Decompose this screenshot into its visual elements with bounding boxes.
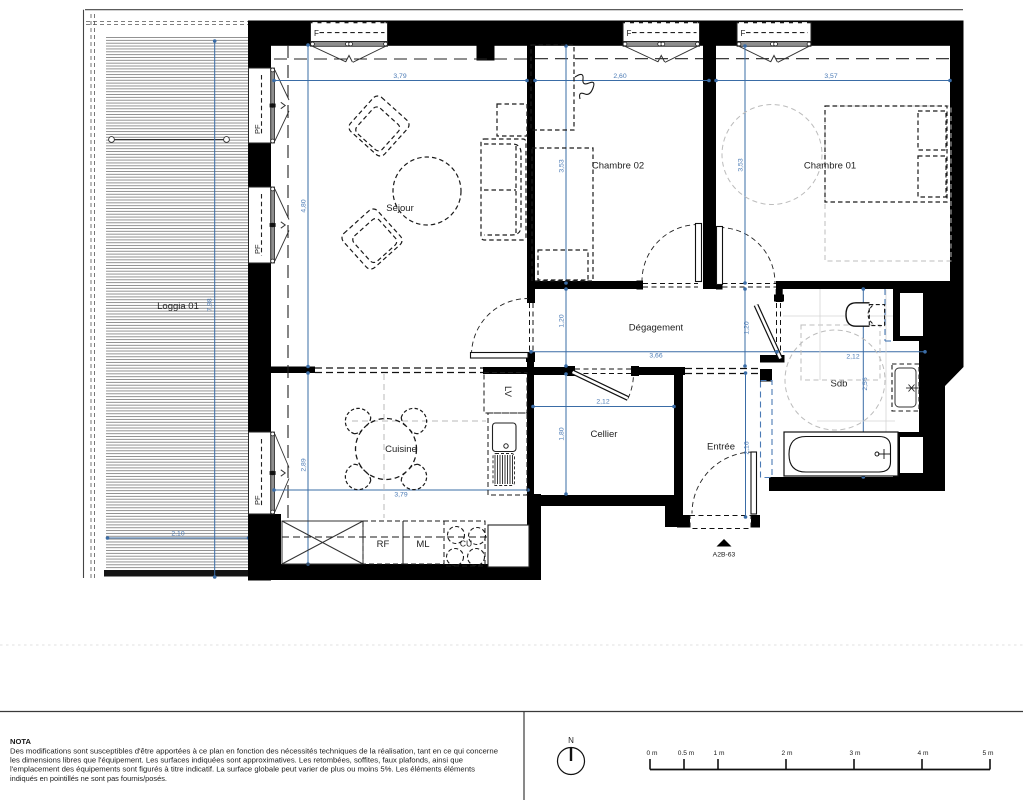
svg-text:7,98: 7,98: [207, 298, 214, 311]
svg-text:l'emplacement des équipements: l'emplacement des équipements sont figur…: [10, 765, 475, 774]
svg-text:1,20: 1,20: [559, 314, 566, 327]
svg-text:2,12: 2,12: [596, 399, 609, 406]
svg-text:Chambre 02: Chambre 02: [592, 161, 644, 172]
svg-text:3,66: 3,66: [649, 353, 662, 360]
svg-text:PF: PF: [253, 244, 262, 254]
svg-text:2,12: 2,12: [846, 354, 859, 361]
svg-text:ML: ML: [416, 539, 429, 550]
svg-text:A2B-63: A2B-63: [713, 552, 736, 559]
svg-text:1,80: 1,80: [559, 427, 566, 440]
svg-text:2,60: 2,60: [613, 73, 626, 80]
svg-text:0.5 m: 0.5 m: [678, 750, 695, 757]
svg-text:Chambre 01: Chambre 01: [804, 161, 856, 172]
svg-text:Des modifications sont suscept: Des modifications sont susceptibles d'êt…: [10, 747, 498, 756]
svg-text:F: F: [314, 29, 319, 38]
svg-text:5 m: 5 m: [983, 750, 994, 757]
svg-text:3,53: 3,53: [738, 158, 745, 171]
svg-text:N: N: [568, 736, 574, 745]
svg-text:RF: RF: [377, 539, 390, 550]
svg-text:PF: PF: [253, 124, 262, 134]
svg-text:1 m: 1 m: [714, 750, 725, 757]
svg-text:3,57: 3,57: [824, 73, 837, 80]
svg-text:3 m: 3 m: [850, 750, 861, 757]
svg-text:Entrée: Entrée: [707, 442, 735, 453]
svg-text:Cuisine: Cuisine: [385, 444, 417, 455]
svg-text:indiqués en pointillés ne sont: indiqués en pointillés ne sont pas fourn…: [10, 774, 167, 783]
svg-text:3,79: 3,79: [393, 73, 406, 80]
svg-text:4 m: 4 m: [918, 750, 929, 757]
svg-text:les dimensions libres que l'éq: les dimensions libres que l'équipement. …: [10, 756, 463, 765]
svg-text:NOTA: NOTA: [10, 737, 31, 746]
svg-text:0 m: 0 m: [647, 750, 658, 757]
svg-text:4,80: 4,80: [301, 199, 308, 212]
svg-text:CU: CU: [460, 539, 472, 549]
svg-text:2,89: 2,89: [301, 458, 308, 471]
svg-text:2,10: 2,10: [171, 531, 184, 538]
svg-text:Loggia 01: Loggia 01: [157, 301, 199, 312]
svg-text:2,16: 2,16: [744, 441, 751, 454]
svg-text:Dégagement: Dégagement: [629, 323, 684, 334]
svg-text:Cellier: Cellier: [591, 429, 618, 440]
svg-text:2,56: 2,56: [862, 377, 869, 390]
svg-text:3,53: 3,53: [559, 159, 566, 172]
svg-text:1,20: 1,20: [744, 321, 751, 334]
svg-text:2 m: 2 m: [782, 750, 793, 757]
svg-text:F: F: [741, 29, 746, 38]
svg-text:PF: PF: [253, 495, 262, 505]
svg-text:3,79: 3,79: [394, 492, 407, 499]
svg-text:F: F: [627, 29, 632, 38]
svg-text:LV: LV: [502, 386, 513, 398]
